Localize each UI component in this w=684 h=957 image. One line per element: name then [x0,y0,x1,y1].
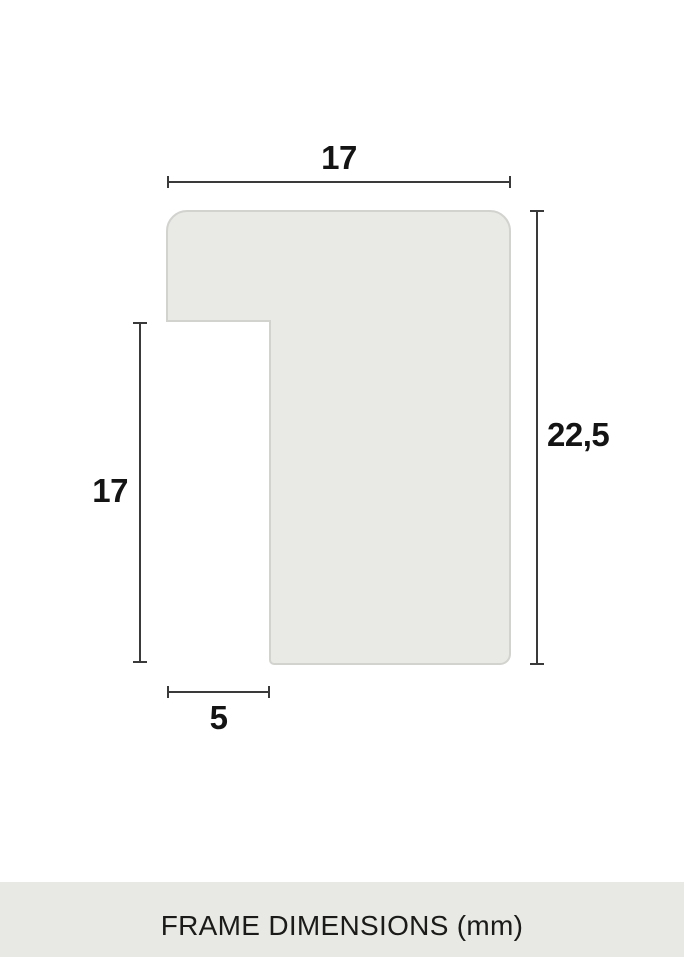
dimension-label-top-width: 17 [168,141,510,174]
dimension-line-top-width-path [168,176,510,188]
dimension-line-left-height [133,323,147,662]
frame-dimensions-page: 17 22,5 17 5 FRAME DIMENSIONS (mm) [0,0,684,957]
dimension-line-right-height-path [530,211,544,664]
dimension-line-top-width [168,176,510,188]
frame-profile-shape [167,211,510,664]
dimension-line-bottom-width-path [168,686,269,698]
caption-text: FRAME DIMENSIONS (mm) [0,912,684,940]
dimension-line-bottom-width [168,686,269,698]
dimension-label-bottom-width: 5 [168,701,269,734]
dimension-line-right-height [530,211,544,664]
dimension-line-left-height-path [133,323,147,662]
dimension-label-right-height: 22,5 [547,418,609,451]
caption-bar: FRAME DIMENSIONS (mm) [0,882,684,957]
frame-profile-diagram: 17 22,5 17 5 [0,0,684,882]
dimension-label-left-height: 17 [58,474,128,507]
